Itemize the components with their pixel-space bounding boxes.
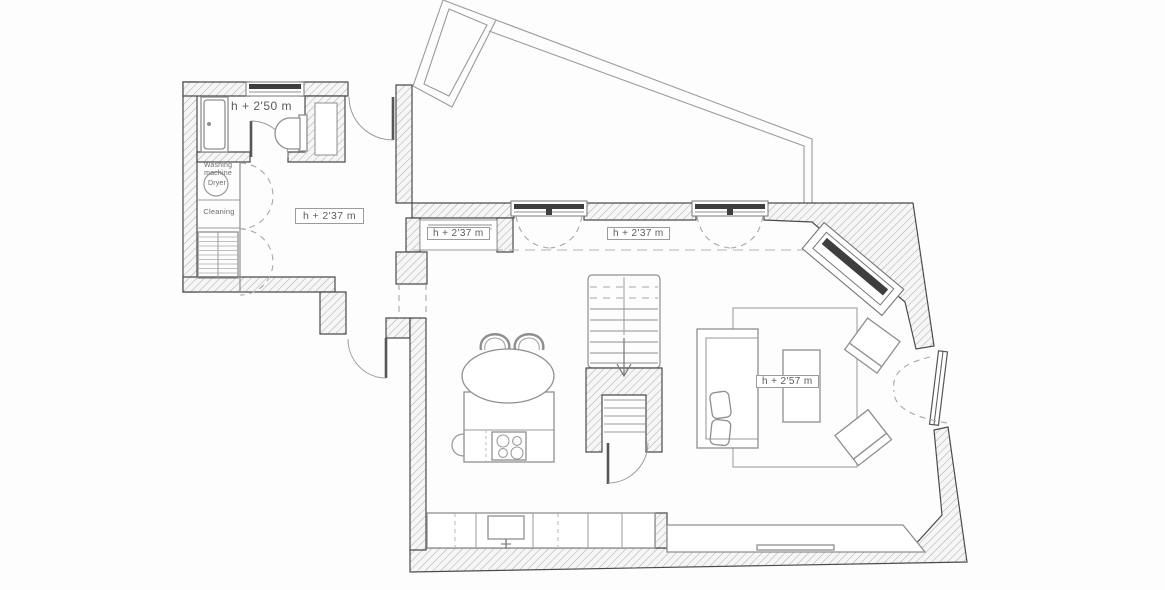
- entry-door: [349, 97, 393, 140]
- stairs-door: [608, 443, 648, 484]
- bathroom-height-label: h + 2'50 m: [231, 99, 292, 113]
- washing-machine-label-line2: machine: [197, 170, 239, 177]
- casement-window-right: [692, 201, 768, 248]
- armchair-bottom: [835, 410, 891, 466]
- bench: [667, 525, 925, 552]
- cleaning-label: Cleaning: [198, 207, 240, 216]
- french-window-door: [894, 351, 948, 426]
- stair-enclosure-wall: [586, 368, 662, 452]
- living-height-label: h + 2'57 m: [756, 375, 819, 388]
- casement-window-left: [511, 201, 587, 248]
- toilet: [275, 115, 307, 151]
- dining-chair-left: [481, 334, 510, 350]
- interior-door: [348, 338, 386, 378]
- towel-ring: [452, 434, 464, 456]
- niche-height-label: h + 2'37 m: [427, 227, 490, 240]
- roof-edge-lines: [489, 20, 812, 203]
- bathroom-window: [246, 82, 304, 96]
- main-room-height-label: h + 2'37 m: [607, 227, 670, 240]
- shelves: [198, 232, 238, 278]
- washing-machine-label-line1: Washing: [197, 162, 239, 169]
- dryer-label: Dryer: [204, 180, 230, 187]
- floor-plan-linework: [0, 0, 1165, 590]
- shower: [201, 97, 228, 152]
- sofa: [697, 329, 758, 448]
- kitchen-counter: [427, 513, 655, 548]
- floor-plan: h + 2'50 m h + 2'37 m h + 2'37 m h + 2'3…: [0, 0, 1165, 590]
- hallway-height-label: h + 2'37 m: [295, 208, 364, 224]
- dining-chair-right: [515, 334, 544, 350]
- roof-skylight: [413, 0, 496, 107]
- closet-folding-doors: [240, 163, 273, 295]
- duct-niche: [315, 103, 337, 155]
- armchair-top: [845, 318, 900, 373]
- dining-table: [462, 349, 554, 403]
